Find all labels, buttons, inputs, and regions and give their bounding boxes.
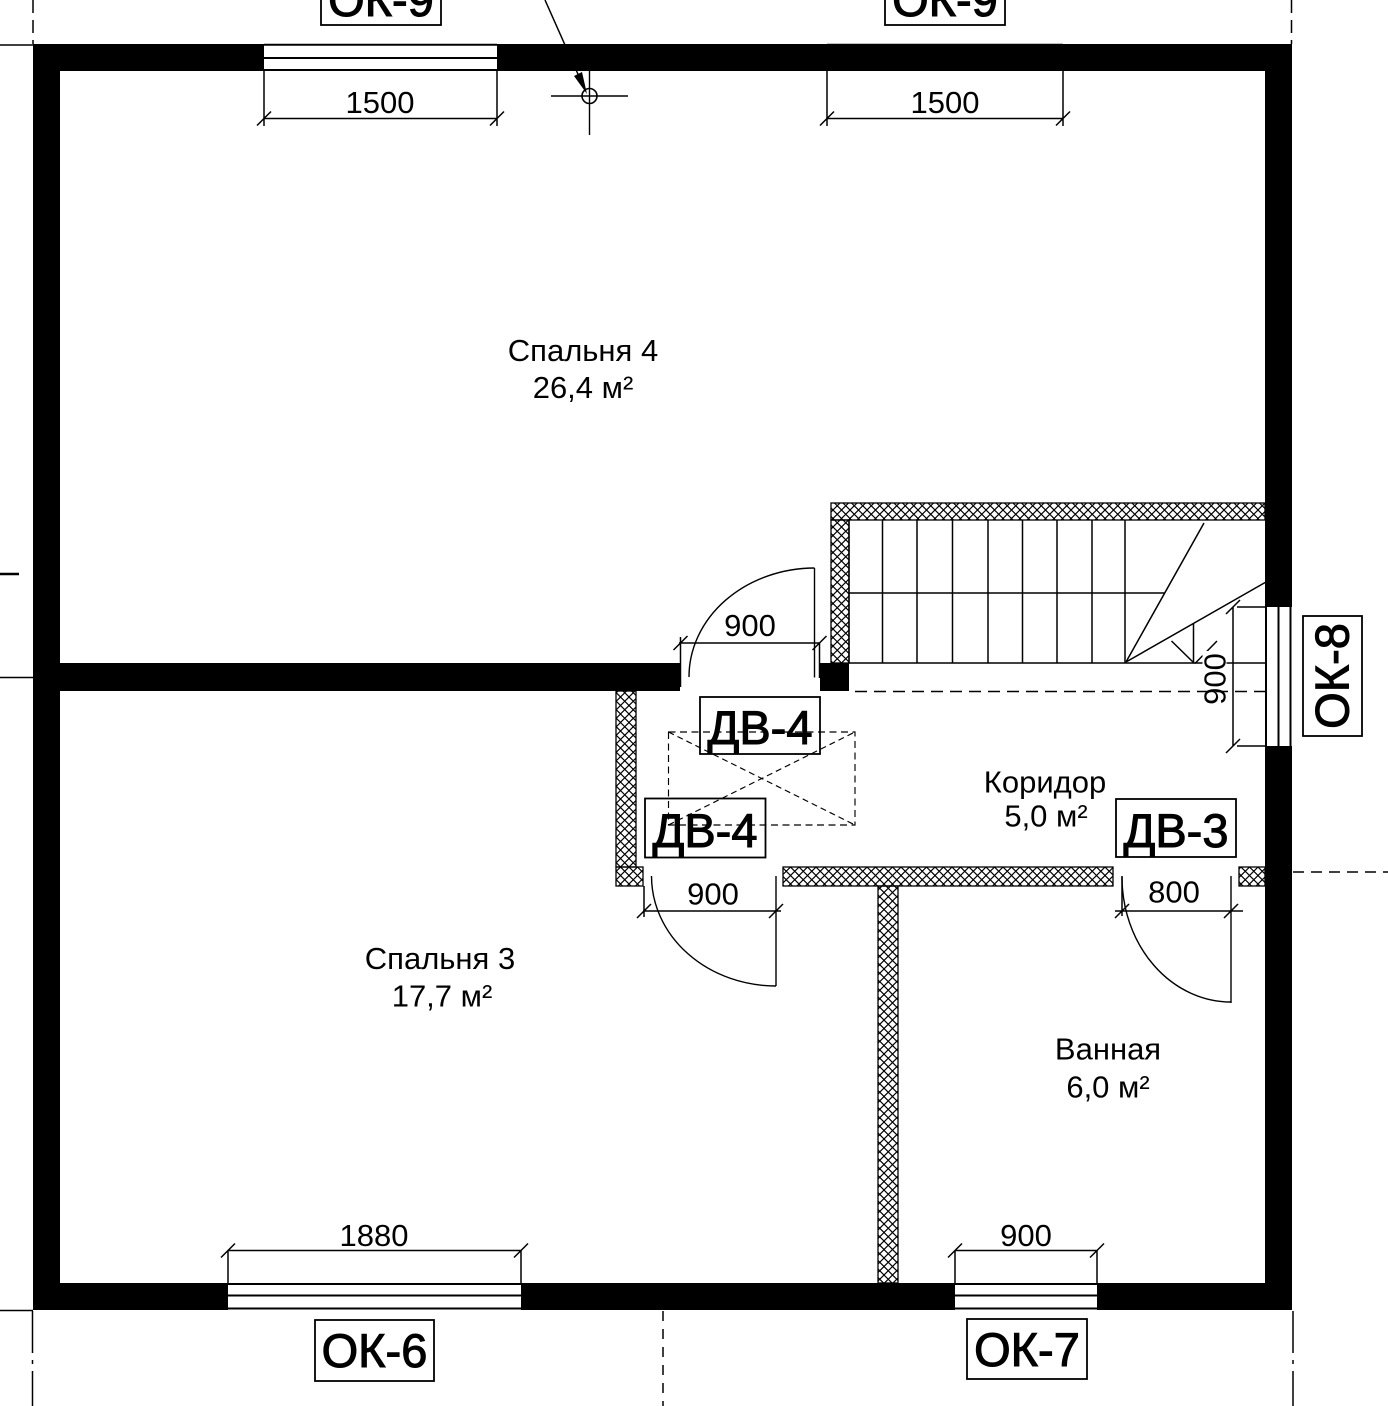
svg-text:26,4 м²: 26,4 м² (533, 370, 634, 405)
svg-text:Спальня 4: Спальня 4 (508, 333, 658, 368)
svg-text:900: 900 (1198, 653, 1233, 705)
svg-text:6,0 м²: 6,0 м² (1066, 1070, 1149, 1105)
svg-text:800: 800 (1148, 875, 1200, 910)
svg-text:900: 900 (1000, 1218, 1052, 1253)
svg-text:Коридор: Коридор (984, 765, 1106, 800)
svg-text:900: 900 (724, 608, 776, 643)
svg-text:ДВ-4: ДВ-4 (708, 701, 813, 754)
svg-text:ОК-7: ОК-7 (974, 1323, 1080, 1376)
svg-text:900: 900 (687, 877, 739, 912)
svg-text:ДВ-3: ДВ-3 (1124, 804, 1229, 857)
svg-text:ДВ-4: ДВ-4 (653, 804, 758, 857)
svg-text:ОК-8: ОК-8 (1306, 623, 1359, 729)
svg-text:5,0 м²: 5,0 м² (1004, 799, 1087, 834)
svg-text:ОК-9: ОК-9 (892, 0, 998, 26)
svg-text:Спальня 3: Спальня 3 (365, 941, 515, 976)
svg-text:1500: 1500 (911, 85, 980, 120)
svg-text:17,7 м²: 17,7 м² (392, 979, 493, 1014)
svg-text:ОК-9: ОК-9 (328, 0, 434, 26)
svg-text:Ванная: Ванная (1055, 1032, 1161, 1067)
svg-text:1500: 1500 (346, 85, 415, 120)
svg-text:ОК-6: ОК-6 (322, 1324, 428, 1377)
svg-text:1880: 1880 (340, 1218, 409, 1253)
